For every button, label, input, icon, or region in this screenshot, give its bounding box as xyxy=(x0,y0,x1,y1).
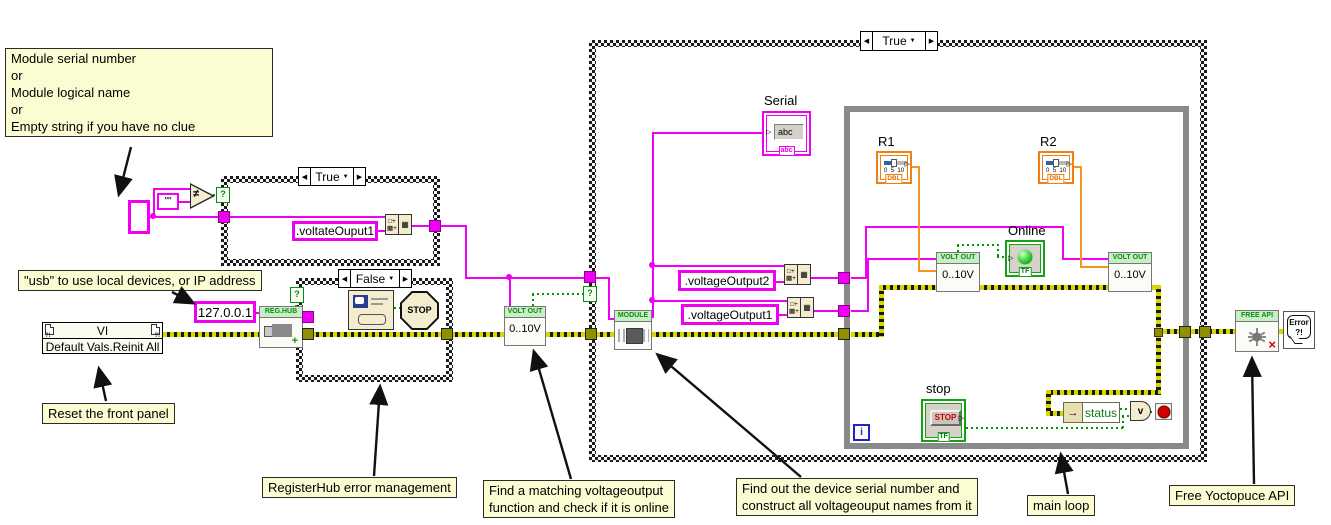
string-wire xyxy=(811,277,841,279)
error-wire xyxy=(851,332,882,337)
boolean-wire xyxy=(966,427,1124,429)
string-wire xyxy=(608,277,610,320)
comment-registerhub: RegisterHub error management xyxy=(262,477,457,498)
comment-line: or xyxy=(11,101,267,118)
invoke-node-reinit[interactable]: ?! VI ?! Default Vals.Reinit All xyxy=(42,322,163,354)
tunnel xyxy=(302,328,314,340)
concat-glyph: ▩+ xyxy=(785,275,797,282)
r1-slider-terminal[interactable]: 0 5 10 ▷ DBL xyxy=(876,151,912,184)
one-button-dialog-node[interactable] xyxy=(348,290,394,330)
r2-label: R2 xyxy=(1040,134,1057,149)
name-suffix-constant[interactable]: .voltateOuput1 xyxy=(292,221,378,241)
terminal-nub-icon: ▷ xyxy=(1008,254,1013,262)
loop-iteration-terminal: i xyxy=(853,424,870,441)
register-hub-node[interactable]: REG.HUB + xyxy=(259,306,303,348)
concat-glyph: ▦ xyxy=(801,298,813,317)
case-selector-label: True xyxy=(882,34,906,48)
numeric-wire xyxy=(1080,266,1108,268)
dialog-icon-line xyxy=(371,303,383,305)
case-selector-main[interactable]: ◀ True▼ ▶ xyxy=(860,31,938,51)
string-wire xyxy=(779,314,787,316)
numeric-wire xyxy=(918,166,920,272)
invoke-node-title: VI xyxy=(97,324,108,338)
concat-glyph: ▦ xyxy=(399,215,411,234)
comment-usb: "usb" to use local devices, or IP addres… xyxy=(18,270,262,291)
labview-block-diagram: ◀ True▼ ▶ ◀ False▼ ▶ ◀ True▼ ▶ xyxy=(0,0,1331,525)
string-wire xyxy=(440,225,467,227)
case-selector-label: False xyxy=(356,272,385,286)
slider-thumb xyxy=(1053,159,1059,167)
tunnel xyxy=(302,311,314,323)
online-led-terminal[interactable]: ▷ TF xyxy=(1005,240,1045,277)
volt-out-node-set2[interactable]: VOLT OUT 0..10V xyxy=(1108,252,1152,292)
error-handler-text: Error xyxy=(1288,318,1310,328)
terminal-nub-icon: ▷ xyxy=(766,128,771,136)
string-wire xyxy=(652,133,654,318)
module-header: MODULE xyxy=(615,311,651,322)
terminal-nub-icon: ▷ xyxy=(905,160,910,168)
selector-prev-icon[interactable]: ◀ xyxy=(299,168,311,185)
stop-button-face[interactable]: STOP xyxy=(930,410,961,426)
unbundle-field-status: status xyxy=(1083,403,1119,422)
string-wire xyxy=(776,281,784,283)
wire-junction xyxy=(649,297,655,303)
error-wire xyxy=(652,332,840,337)
comment-line: Empty string if you have no clue xyxy=(11,118,267,135)
led-icon xyxy=(1018,250,1033,265)
error-wire xyxy=(980,285,1108,290)
stop-if-true-icon xyxy=(1157,405,1170,418)
online-led-label: Online xyxy=(1008,223,1046,238)
dropdown-icon: ▼ xyxy=(910,38,916,44)
string-wire xyxy=(465,225,467,279)
error-wire xyxy=(1046,390,1158,395)
module-name-string-control[interactable] xyxy=(128,200,150,234)
string-wire xyxy=(150,216,220,218)
string-wire xyxy=(652,265,784,267)
string-wire xyxy=(412,225,430,227)
volt-out-header: VOLT OUT xyxy=(505,307,545,318)
string-wire xyxy=(465,277,585,279)
string-wire xyxy=(867,259,869,312)
comment-main-loop: main loop xyxy=(1027,495,1095,516)
case-selector-terminal: ? xyxy=(216,187,230,203)
tf-type-tag: TF xyxy=(1019,267,1032,277)
serial-indicator-label: Serial xyxy=(764,93,797,108)
invoke-method-name: Default Vals.Reinit All xyxy=(43,339,162,354)
stop-button-label: stop xyxy=(926,381,951,396)
register-hub-header: REG.HUB xyxy=(260,307,302,318)
error-wire xyxy=(546,332,585,337)
tunnel xyxy=(429,220,441,232)
invoke-flags: ?! xyxy=(45,333,51,339)
concat-glyph: ▩+ xyxy=(386,225,398,232)
volt-out-range: 0..10V xyxy=(505,323,545,335)
boolean-wire xyxy=(532,294,534,306)
boolean-wire xyxy=(1122,416,1124,429)
concat-glyph: □+ xyxy=(785,268,797,275)
vo1-name-constant[interactable]: .voltageOutput1 xyxy=(681,304,779,325)
error-wire xyxy=(1156,285,1161,395)
usb-icon xyxy=(272,324,292,337)
plus-icon: + xyxy=(292,336,298,346)
serial-indicator-terminal[interactable]: ▷ abc abc xyxy=(762,111,811,156)
volt-out-range: 0..10V xyxy=(1109,269,1151,281)
loop-condition-terminal[interactable] xyxy=(1155,403,1172,420)
error-wire xyxy=(451,332,504,337)
tunnel xyxy=(218,211,230,223)
r2-slider-terminal[interactable]: 0 5 10 ▷ DBL xyxy=(1038,151,1074,184)
volt-out-node-set1[interactable]: VOLT OUT 0..10V xyxy=(936,252,980,292)
tunnel xyxy=(1179,326,1191,338)
tf-type-tag: TF xyxy=(937,432,950,442)
unbundle-arrow-icon: → xyxy=(1064,403,1083,422)
not-equal-node[interactable]: ≠ xyxy=(190,183,215,209)
empty-string-constant[interactable]: "" xyxy=(157,193,179,210)
wire-junction xyxy=(1154,328,1163,337)
string-type-tag: abc xyxy=(778,146,794,156)
concat-glyph: ▦ xyxy=(798,265,810,284)
simple-error-handler-node[interactable]: Error ?! xyxy=(1283,311,1315,349)
numeric-wire xyxy=(918,270,936,272)
comment-line: Find out the device serial number and xyxy=(742,480,972,497)
case-selector-terminal: ? xyxy=(583,286,597,302)
tunnel xyxy=(838,328,850,340)
comment-line: construct all voltageouput names from it xyxy=(742,497,972,514)
comment-line: Find a matching voltageoutput xyxy=(489,482,669,499)
string-wire xyxy=(814,310,841,312)
case-selector-label: True xyxy=(315,170,339,184)
error-wire xyxy=(312,332,441,337)
string-wire xyxy=(1062,226,1064,260)
dialog-icon xyxy=(353,295,368,308)
serial-value: abc xyxy=(774,124,804,140)
error-wire xyxy=(163,332,259,337)
tunnel xyxy=(838,272,850,284)
stop-sign-label: STOP xyxy=(400,305,439,315)
terminal-nub-icon: ▷ xyxy=(1067,160,1072,168)
volt-out-header: VOLT OUT xyxy=(937,253,979,264)
case-selector-error[interactable]: ◀ False▼ ▶ xyxy=(338,269,412,288)
wire-junction xyxy=(150,213,156,219)
terminal-nub-icon: ▷ xyxy=(959,414,964,422)
string-wire xyxy=(378,230,385,232)
volt-out-range: 0..10V xyxy=(937,269,979,281)
comment-free-api: Free Yoctopuce API xyxy=(1169,485,1295,506)
ip-address-constant[interactable]: 127.0.0.1 xyxy=(194,301,256,323)
comment-line: Module serial number xyxy=(11,50,267,67)
comment-line: Module logical name xyxy=(11,84,267,101)
module-node[interactable]: MODULE xyxy=(614,310,652,350)
spider-icon-body xyxy=(1253,332,1262,341)
vo2-name-constant[interactable]: .voltageOutput2 xyxy=(678,270,776,291)
error-wire xyxy=(1156,329,1235,334)
error-wire xyxy=(879,285,936,290)
invoke-flags: ?! xyxy=(154,333,160,339)
concat-glyph: □+ xyxy=(386,218,398,225)
comment-line: or xyxy=(11,67,267,84)
comment-module-serial: Module serial number or Module logical n… xyxy=(5,48,273,137)
boolean-wire xyxy=(957,244,999,246)
concat-glyph: □+ xyxy=(788,301,800,308)
comment-find-matching: Find a matching voltageoutput function a… xyxy=(483,480,675,518)
error-wire xyxy=(879,287,884,337)
string-wire xyxy=(1062,258,1108,260)
dbl-type-tag: DBL xyxy=(885,174,902,184)
delete-x-icon: × xyxy=(1268,337,1276,352)
comment-find-serial: Find out the device serial number and co… xyxy=(736,478,978,516)
or-function-node[interactable]: v xyxy=(1130,401,1151,421)
string-wire xyxy=(509,279,511,306)
string-wire xyxy=(153,188,191,190)
tunnel xyxy=(838,305,850,317)
selector-next-icon[interactable]: ▶ xyxy=(353,168,365,185)
selector-next-icon[interactable]: ▶ xyxy=(399,270,411,287)
dbl-type-tag: DBL xyxy=(1047,174,1064,184)
dropdown-icon: ▼ xyxy=(388,276,394,282)
case-selector-terminal: ? xyxy=(290,287,304,303)
stop-button-terminal[interactable]: STOP ▷ TF xyxy=(921,399,966,442)
numeric-wire xyxy=(1080,166,1082,268)
boolean-wire xyxy=(532,293,586,295)
selector-next-icon[interactable]: ▶ xyxy=(925,32,937,50)
concat-strings-node[interactable]: □+▩+ ▦ xyxy=(784,264,811,285)
tunnel xyxy=(585,328,597,340)
concat-glyph: ▩+ xyxy=(788,308,800,315)
concat-strings-node[interactable]: □+▩+ ▦ xyxy=(385,214,412,235)
comment-line: function and check if it is online xyxy=(489,499,669,516)
string-wire xyxy=(229,216,385,218)
slider-thumb xyxy=(891,159,897,167)
stop-function-node[interactable]: STOP xyxy=(400,291,439,330)
string-wire xyxy=(652,132,762,134)
wire-junction xyxy=(506,274,512,280)
or-glyph: v xyxy=(1138,406,1144,417)
tunnel xyxy=(441,328,453,340)
error-wire xyxy=(1046,411,1064,416)
tunnel xyxy=(1199,326,1211,338)
not-equal-glyph: ≠ xyxy=(193,188,199,200)
comment-reset: Reset the front panel xyxy=(42,403,175,424)
dialog-icon-line xyxy=(371,298,388,300)
r1-label: R1 xyxy=(878,134,895,149)
volt-out-node-find[interactable]: VOLT OUT 0..10V xyxy=(504,306,546,346)
free-api-header: FREE API xyxy=(1236,311,1278,322)
dropdown-icon: ▼ xyxy=(343,174,349,180)
free-api-node[interactable]: FREE API × xyxy=(1235,310,1279,352)
chip-icon xyxy=(626,328,643,344)
concat-strings-node[interactable]: □+▩+ ▦ xyxy=(787,297,814,318)
error-wire xyxy=(596,332,614,337)
selector-prev-icon[interactable]: ◀ xyxy=(861,32,873,50)
dialog-button-icon xyxy=(358,314,386,325)
case-selector-name-builder[interactable]: ◀ True▼ ▶ xyxy=(298,167,366,186)
wire-junction xyxy=(649,262,655,268)
string-wire xyxy=(867,258,936,260)
selector-prev-icon[interactable]: ◀ xyxy=(339,270,351,287)
string-wire xyxy=(652,300,787,302)
tunnel xyxy=(584,271,596,283)
unbundle-by-name-node[interactable]: → status xyxy=(1063,402,1120,423)
volt-out-header: VOLT OUT xyxy=(1109,253,1151,264)
